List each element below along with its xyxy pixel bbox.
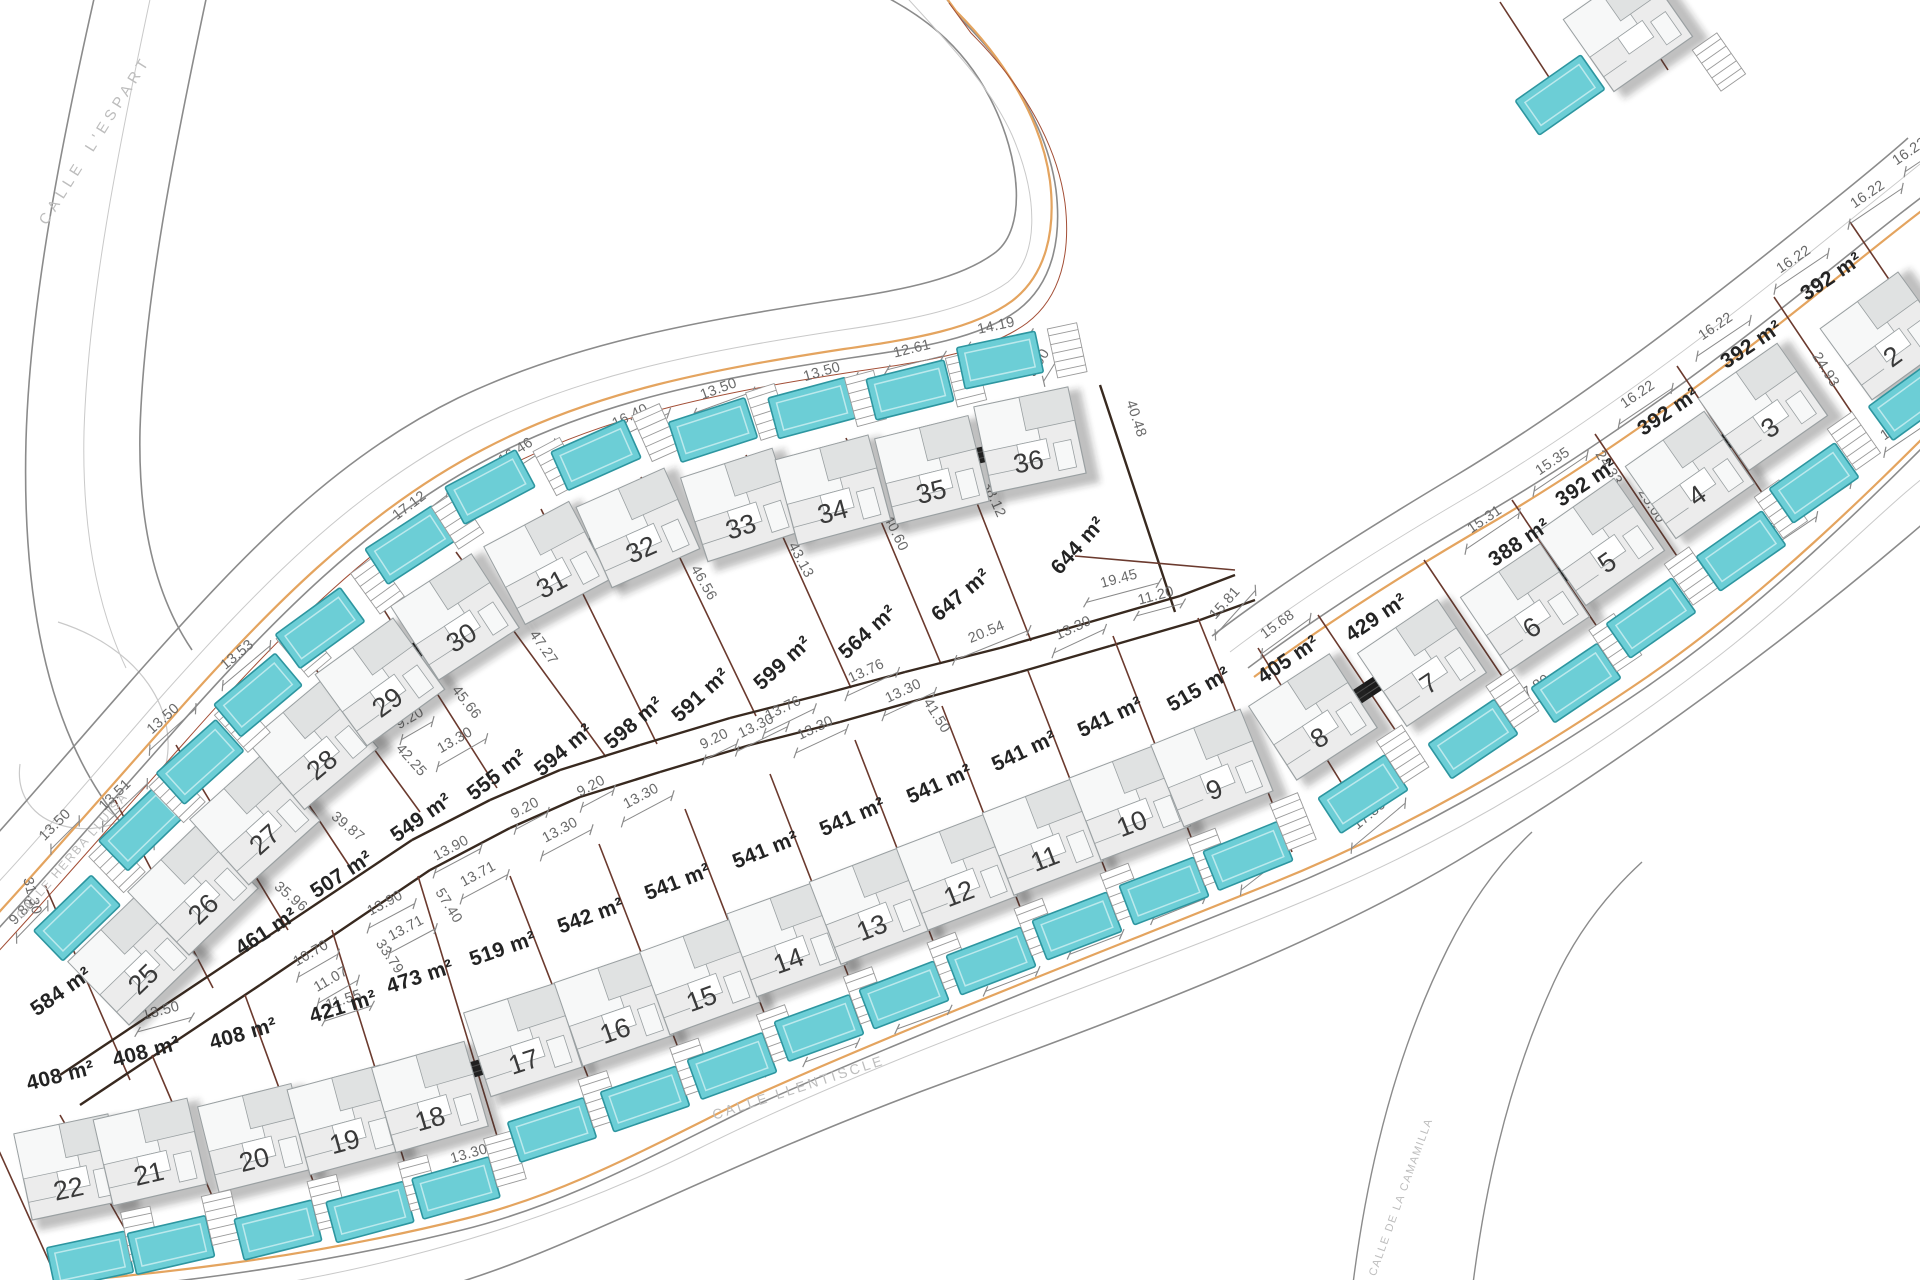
svg-text:16.22: 16.22	[1848, 177, 1888, 211]
area-label: 644 m²	[1047, 512, 1110, 579]
area-label: 541 m²	[903, 760, 975, 809]
svg-text:13.30: 13.30	[883, 676, 924, 706]
plot-boundary	[1500, 2, 1556, 88]
svg-text:408 m²: 408 m²	[207, 1013, 280, 1054]
svg-text:13.50: 13.50	[144, 700, 183, 737]
svg-text:541 m²: 541 m²	[988, 726, 1060, 776]
dimension-label: 41.50	[920, 696, 954, 737]
area-label: 541 m²	[1074, 692, 1146, 742]
svg-text:408 m²: 408 m²	[24, 1056, 96, 1095]
road-edge	[1472, 862, 1642, 1280]
svg-text:594 m²: 594 m²	[530, 719, 598, 781]
urbanization-site-plan: 17.1216.4616.4013.5013.5012.6114.195.001…	[0, 0, 1920, 1280]
area-label: 408 m²	[24, 1056, 96, 1095]
area-label: 408 m²	[110, 1032, 183, 1072]
svg-text:13.50: 13.50	[36, 806, 74, 844]
svg-text:13.71: 13.71	[458, 859, 499, 891]
svg-text:57.40: 57.40	[432, 886, 466, 927]
svg-text:564 m²: 564 m²	[834, 601, 901, 664]
svg-text:16.22: 16.22	[1618, 377, 1658, 411]
area-label: 541 m²	[988, 726, 1060, 776]
dimension-label: 40.48	[1122, 398, 1149, 439]
pool	[866, 360, 954, 420]
pool	[768, 377, 856, 438]
area-label: 598 m²	[600, 692, 668, 754]
svg-text:10.70: 10.70	[291, 937, 332, 970]
svg-text:541 m²: 541 m²	[816, 793, 888, 841]
road-edge	[140, 0, 208, 650]
svg-text:647 m²: 647 m²	[927, 564, 995, 626]
svg-text:408 m²: 408 m²	[110, 1032, 183, 1072]
svg-text:549 m²: 549 m²	[386, 788, 456, 846]
area-label: 542 m²	[554, 893, 627, 938]
plot-boundary	[1075, 556, 1235, 570]
dimension-label: 9.20	[691, 723, 742, 766]
svg-text:13.71: 13.71	[386, 913, 427, 945]
plot-boundary	[1110, 620, 1200, 646]
dimension-label: 16.22	[1833, 168, 1907, 230]
svg-text:591 m²: 591 m²	[667, 664, 734, 727]
svg-text:41.50: 41.50	[920, 696, 954, 737]
pool	[600, 1066, 689, 1132]
dimension-label: 39.87	[328, 809, 367, 846]
pool	[957, 331, 1044, 389]
dimension-label: 13.30	[609, 774, 678, 827]
area-label: 599 m²	[749, 632, 816, 695]
dimension-label: 42.25	[392, 741, 429, 780]
pool	[1515, 55, 1605, 135]
area-label: 408 m²	[207, 1013, 280, 1054]
svg-text:13.30: 13.30	[795, 713, 836, 743]
street-label: CALLE DE LA CAMAMILLA	[1367, 1116, 1435, 1277]
plot-number: 22	[51, 1171, 87, 1207]
svg-text:40.48: 40.48	[1122, 398, 1149, 439]
svg-text:644 m²: 644 m²	[1047, 512, 1110, 579]
svg-text:598 m²: 598 m²	[600, 692, 668, 754]
pool	[445, 450, 535, 525]
svg-text:CALLE: CALLE	[36, 157, 89, 228]
plot-boundary	[1020, 646, 1110, 672]
dimension-label: 20.54	[943, 608, 1034, 665]
dimension-label: 57.40	[432, 886, 466, 927]
area-label: 541 m²	[641, 859, 714, 905]
road-edge	[1352, 832, 1532, 1280]
svg-text:13.30: 13.30	[435, 724, 476, 757]
area-label: 591 m²	[667, 664, 734, 727]
area-label: 515 m²	[1163, 662, 1234, 716]
dimension-label: 11.20	[1127, 581, 1188, 621]
svg-text:42.25: 42.25	[392, 741, 429, 780]
area-label: 564 m²	[834, 601, 901, 664]
svg-text:16.22: 16.22	[1696, 309, 1736, 343]
plot-boundary	[905, 648, 1000, 672]
area-label: 519 m²	[467, 927, 540, 971]
street-label: L'ESPART	[82, 53, 155, 155]
svg-text:584 m²: 584 m²	[26, 962, 96, 1020]
svg-text:16.22: 16.22	[1774, 242, 1814, 276]
svg-text:541 m²: 541 m²	[641, 859, 714, 905]
dimension-label: 9.20	[568, 769, 619, 813]
svg-text:599 m²: 599 m²	[749, 632, 816, 695]
svg-text:15.31: 15.31	[1465, 502, 1505, 536]
driveway-hatch	[1047, 323, 1087, 378]
svg-text:541 m²: 541 m²	[903, 760, 975, 809]
svg-text:13.90: 13.90	[365, 888, 406, 920]
area-label: 584 m²	[26, 962, 96, 1020]
area-label: 594 m²	[530, 719, 598, 781]
site-plan-canvas: 17.1216.4616.4013.5013.5012.6114.195.001…	[0, 0, 1920, 1280]
area-label: 647 m²	[927, 564, 995, 626]
pool	[946, 927, 1036, 995]
area-label: 549 m²	[386, 788, 456, 846]
pool	[47, 1231, 134, 1280]
area-label: 541 m²	[729, 826, 802, 873]
pool	[551, 420, 641, 491]
svg-text:20.54: 20.54	[966, 618, 1007, 647]
area-label: 541 m²	[816, 793, 888, 841]
svg-text:542 m²: 542 m²	[554, 893, 627, 938]
svg-text:541 m²: 541 m²	[1074, 692, 1146, 742]
svg-text:CALLE DE LA CAMAMILLA: CALLE DE LA CAMAMILLA	[1367, 1116, 1435, 1277]
svg-text:13.76: 13.76	[763, 693, 804, 724]
svg-text:541 m²: 541 m²	[729, 826, 802, 873]
svg-text:15.35: 15.35	[1533, 444, 1573, 478]
street-label: CALLE	[36, 157, 89, 228]
svg-text:519 m²: 519 m²	[467, 927, 540, 971]
pool	[774, 995, 864, 1062]
pool	[507, 1098, 596, 1163]
svg-text:13.30: 13.30	[1053, 613, 1094, 643]
svg-text:515 m²: 515 m²	[1163, 662, 1234, 716]
svg-text:19.45: 19.45	[1099, 567, 1140, 592]
svg-text:39.87: 39.87	[328, 809, 367, 846]
svg-text:13.30: 13.30	[540, 815, 581, 847]
svg-text:16.22: 16.22	[1890, 134, 1920, 168]
svg-text:13.53: 13.53	[218, 637, 257, 674]
plot-boundary	[925, 672, 1020, 698]
svg-text:L'ESPART: L'ESPART	[82, 53, 155, 155]
house-plot-36: 36	[974, 384, 1100, 504]
svg-text:13.30: 13.30	[621, 781, 662, 813]
plot-number: 36	[1011, 444, 1047, 480]
pool	[668, 398, 757, 463]
